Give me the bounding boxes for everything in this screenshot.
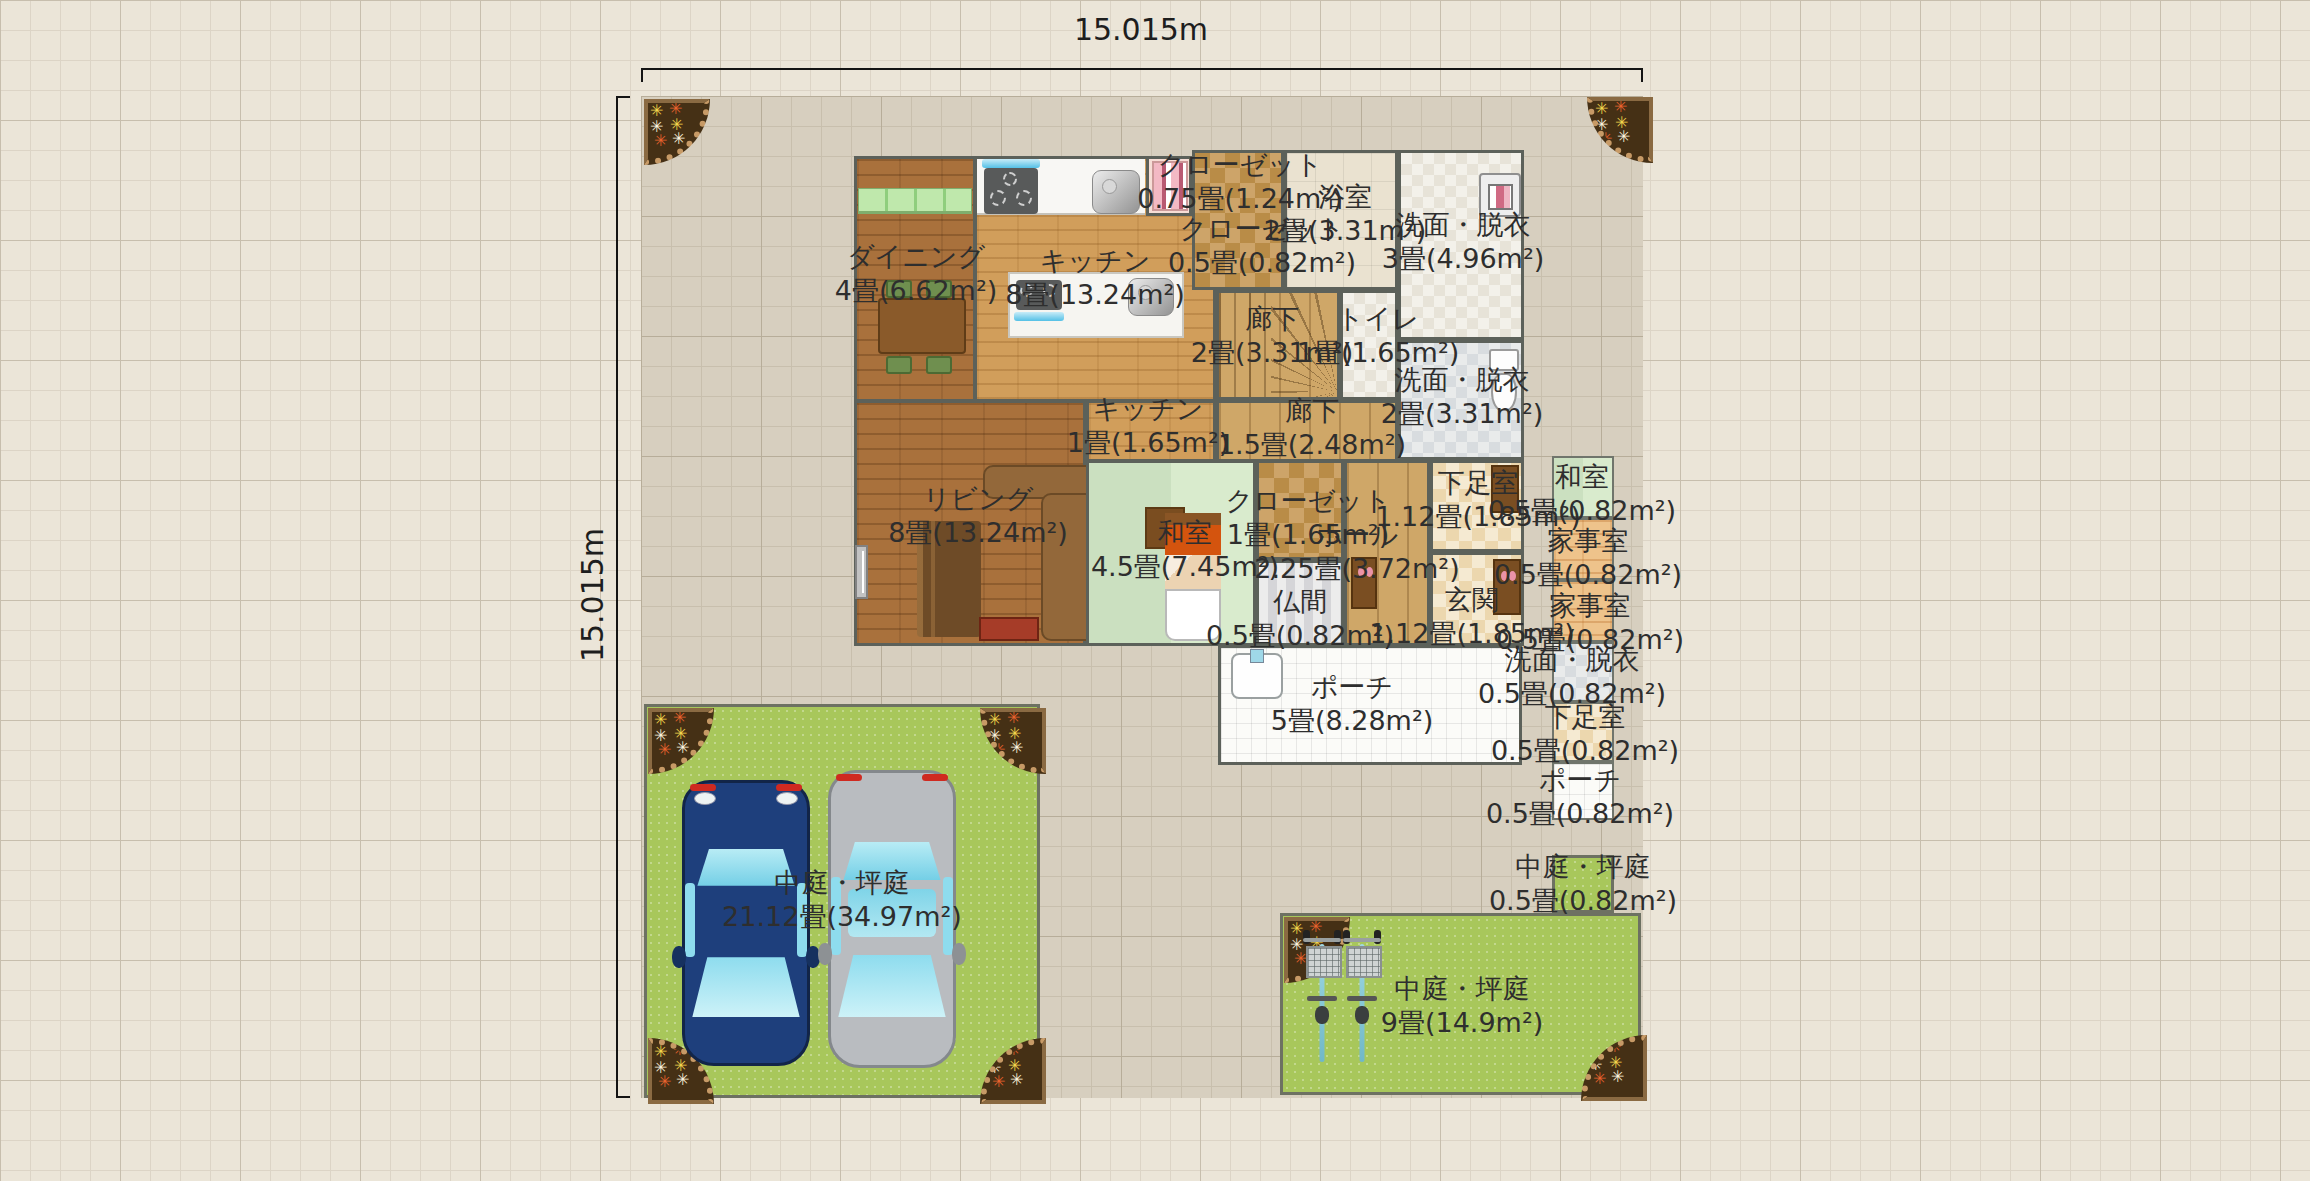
car-tail-light xyxy=(776,784,802,791)
car-side-window xyxy=(685,883,695,957)
room-label-courtyard-21: 中庭・坪庭21.12畳(34.97m²) xyxy=(722,866,962,934)
dimension-tick xyxy=(616,96,630,98)
floorplan-canvas: 15.015m 15.015m xyxy=(0,0,2310,1181)
car-light xyxy=(694,792,716,805)
dimension-label-height: 15.015m xyxy=(575,528,610,662)
room-label-courtyard-9: 中庭・坪庭9畳(14.9m²) xyxy=(1381,972,1544,1040)
chair-icon[interactable] xyxy=(886,356,912,374)
car-light xyxy=(776,792,798,805)
bicycle-handlebar xyxy=(1343,938,1381,942)
burner-icon xyxy=(1003,172,1017,186)
car-tail-light xyxy=(690,784,716,791)
dimension-tick xyxy=(616,1096,630,1098)
room-label-living: リビング8畳(13.24m²) xyxy=(888,482,1068,550)
island-glass-lid xyxy=(1014,312,1064,321)
room-label-porch-05: ポーチ0.5畳(0.82m²) xyxy=(1486,763,1674,831)
car-mirror xyxy=(818,943,832,965)
room-label-porch-5: ポーチ5畳(8.28m²) xyxy=(1271,670,1434,738)
room-label-toilet: トイレ1畳(1.65m²) xyxy=(1297,302,1460,370)
room-label-kitchen-1: キッチン1畳(1.65m²) xyxy=(1067,392,1230,460)
room-label-kitchen-8: キッチン8畳(13.24m²) xyxy=(1005,244,1185,312)
bicycle-pedal xyxy=(1347,996,1377,1001)
stove-icon[interactable] xyxy=(984,168,1038,214)
car-tail-light xyxy=(922,774,948,781)
bicycle-basket xyxy=(1346,946,1382,978)
stove-glass-lid xyxy=(982,159,1040,168)
bicycle-icon[interactable] xyxy=(1303,930,1341,1070)
car-windshield xyxy=(838,955,946,1018)
sink-icon[interactable] xyxy=(1092,170,1140,214)
burner-icon xyxy=(990,190,1006,206)
dimension-tick xyxy=(641,68,643,82)
dimension-label-width: 15.015m xyxy=(1074,12,1208,47)
car-windshield xyxy=(692,957,800,1017)
car-mirror xyxy=(952,943,966,965)
dimension-line-left xyxy=(616,96,618,1098)
room-label-dining: ダイニング4畳(6.62m²) xyxy=(835,240,998,308)
dimension-tick xyxy=(1641,68,1643,82)
bicycle-icon[interactable] xyxy=(1343,930,1381,1070)
room-label-washroom-3: 洗面・脱衣3畳(4.96m²) xyxy=(1382,208,1545,276)
room-label-kajishitsu-a: 家事室0.5畳(0.82m²) xyxy=(1494,524,1682,592)
room-label-corridor-15: 廊下1.5畳(2.48m²) xyxy=(1218,394,1406,462)
car-tail-light xyxy=(836,774,862,781)
dining-cabinets[interactable] xyxy=(858,188,972,214)
bicycle-pedal xyxy=(1307,996,1337,1001)
dimension-line-top xyxy=(641,68,1643,70)
bicycle-seat xyxy=(1315,1006,1329,1024)
bicycle-handlebar xyxy=(1303,938,1341,942)
tv-board-icon[interactable] xyxy=(979,617,1039,641)
room-label-getashitsu-05: 下足室0.5畳(0.82m²) xyxy=(1491,700,1679,768)
bicycle-basket xyxy=(1306,946,1342,978)
door-icon[interactable] xyxy=(855,545,868,599)
car-mirror xyxy=(672,946,686,968)
room-label-courtyard-05: 中庭・坪庭0.5畳(0.82m²) xyxy=(1489,850,1677,918)
room-label-butsuma: 仏間0.5畳(0.82m²) xyxy=(1206,585,1394,653)
room-label-washitsu-05: 和室0.5畳(0.82m²) xyxy=(1488,460,1676,528)
room-label-closet-05: クローゼット0.5畳(0.82m²) xyxy=(1168,212,1356,280)
washing-machine-door xyxy=(1488,184,1513,210)
chair-icon[interactable] xyxy=(926,356,952,374)
burner-icon xyxy=(1016,190,1032,206)
bicycle-seat xyxy=(1355,1006,1369,1024)
